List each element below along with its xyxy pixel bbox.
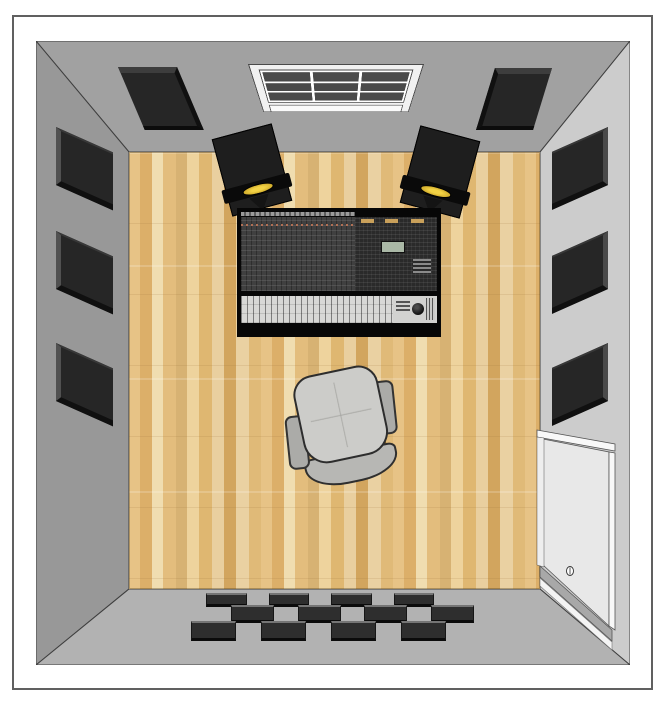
- window-glass-grid: [259, 70, 414, 103]
- console-master-section: [355, 217, 437, 291]
- console-lcd-display: [381, 241, 405, 253]
- window-column: [312, 72, 359, 100]
- window-pane: [312, 72, 359, 81]
- console-patch-strip: [426, 298, 435, 320]
- window-pane: [314, 93, 358, 101]
- diffuser-tile-array: [196, 593, 476, 651]
- office-chair: [273, 353, 409, 494]
- tile-cell: [266, 621, 301, 641]
- console-button-grid: [413, 259, 431, 273]
- diffuser-tile: [191, 621, 237, 641]
- console-knob-row: [241, 224, 355, 226]
- window: [248, 64, 424, 112]
- diffuser-tile: [261, 621, 307, 641]
- console-numpad: [396, 299, 410, 311]
- studio-room-render: [0, 0, 665, 702]
- tile-cell: [196, 621, 231, 641]
- console-button-chip: [361, 219, 374, 223]
- window-column: [360, 72, 410, 100]
- diffuser-tile: [401, 621, 447, 641]
- tile-cell: [336, 621, 371, 641]
- console-button-chip: [411, 219, 424, 223]
- tile-cell: [441, 621, 476, 641]
- mixing-console: [237, 208, 441, 337]
- wall-left: [36, 41, 129, 665]
- window-pane: [313, 83, 358, 91]
- window-pane: [268, 93, 312, 101]
- window-pane: [360, 93, 404, 101]
- console-scribble-strip: [241, 212, 355, 216]
- diffuser-tile: [331, 621, 377, 641]
- window-sill: [269, 105, 404, 112]
- tile-cell: [406, 621, 441, 641]
- chair-seat-seams: [304, 376, 378, 453]
- console-jog-knob: [412, 303, 424, 315]
- window-pane: [361, 83, 407, 91]
- window-pane: [265, 83, 311, 91]
- door-left-jamb: [537, 437, 544, 567]
- door: [528, 425, 623, 655]
- window-pane: [362, 72, 410, 81]
- console-button-chip: [385, 219, 398, 223]
- window-column: [262, 72, 312, 100]
- tile-row: [196, 621, 476, 641]
- door-right-stile: [609, 452, 615, 630]
- console-master-fader-section: [393, 296, 437, 323]
- console-channel-section: [241, 217, 355, 291]
- console-fader-section: [241, 296, 393, 323]
- window-pane: [262, 72, 310, 81]
